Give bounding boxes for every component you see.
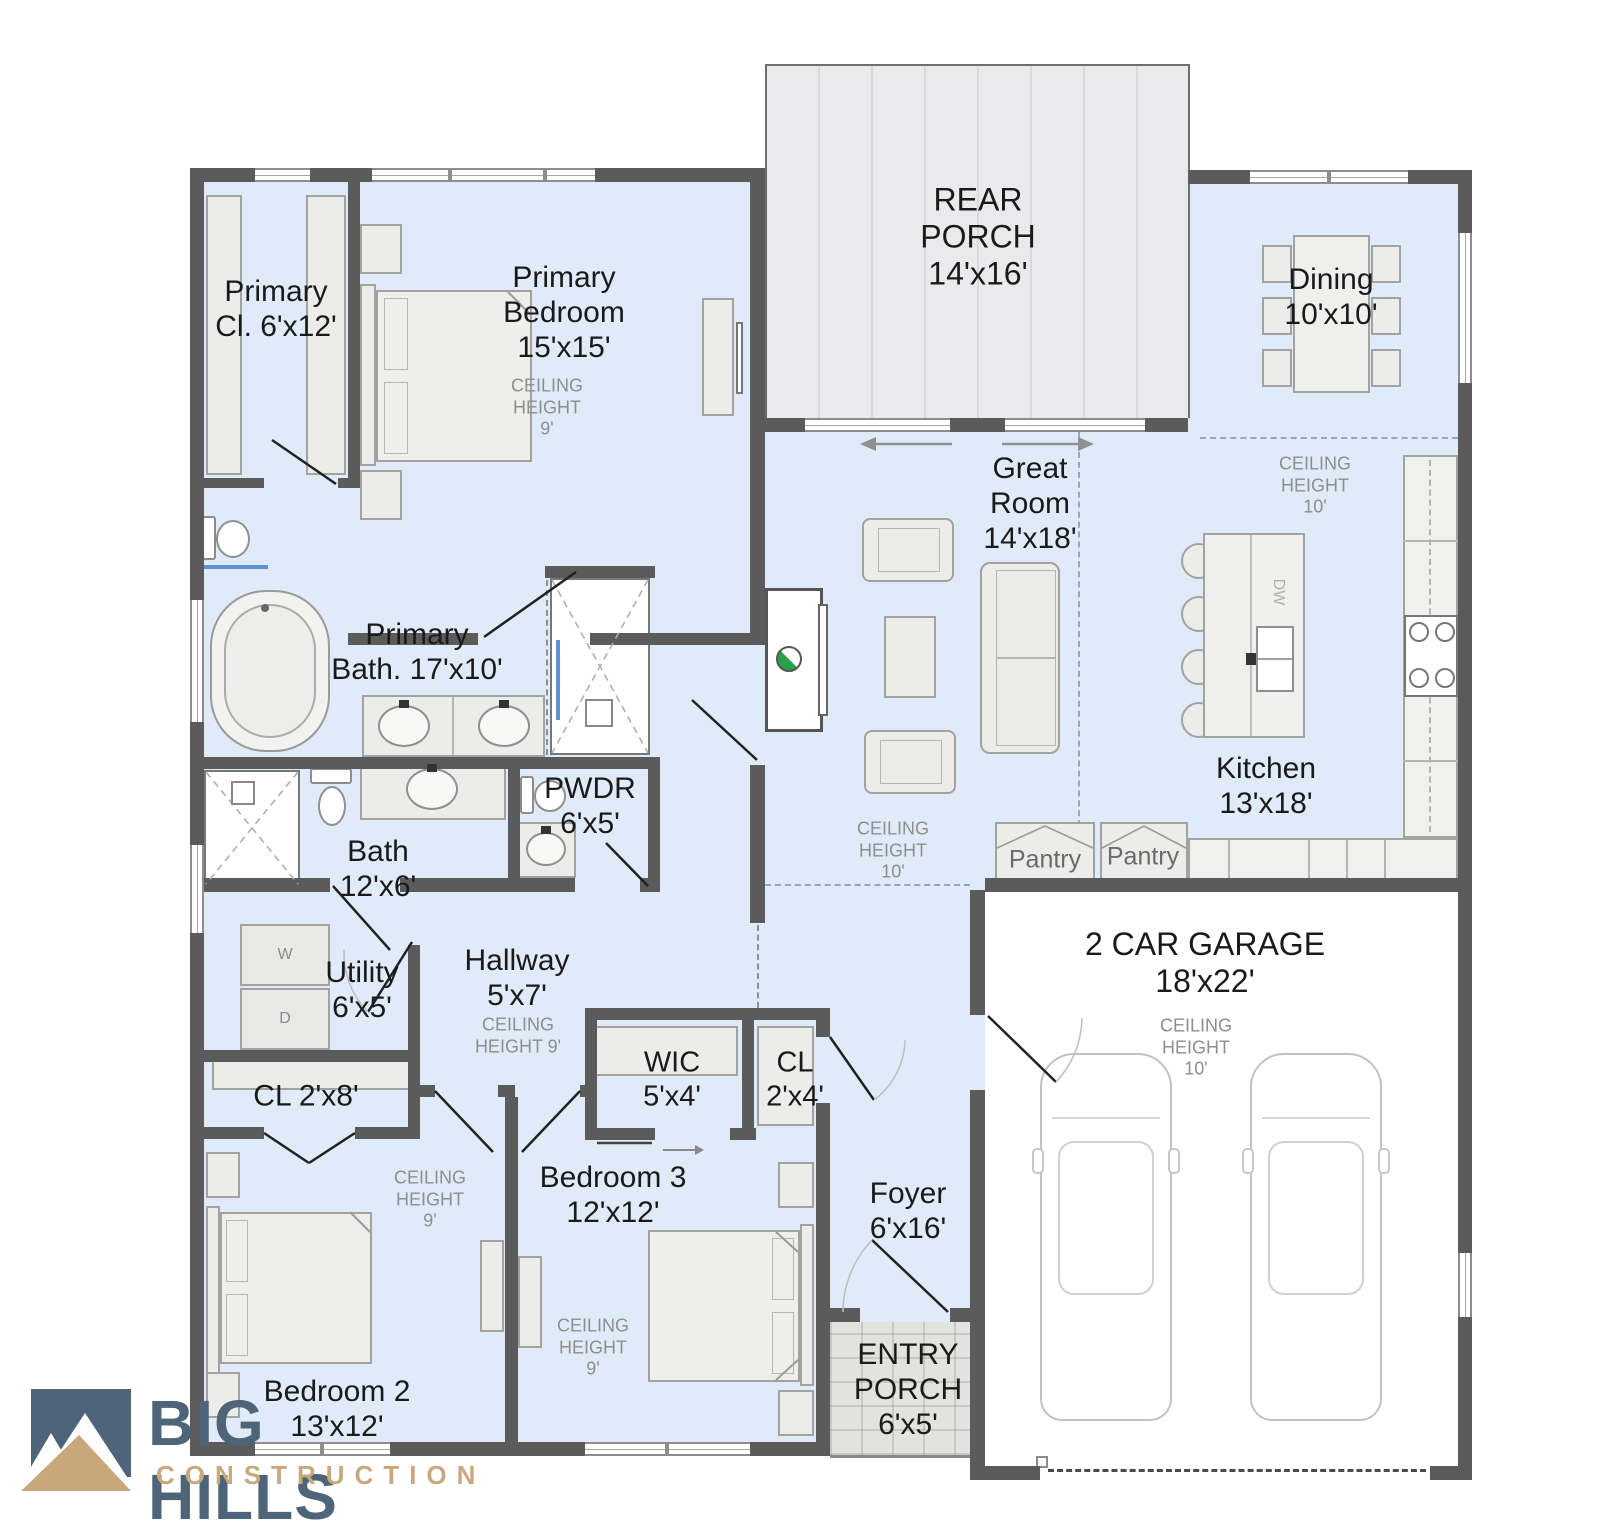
room-label-bedroom2: Bedroom 2 13'x12' — [264, 1375, 411, 1445]
wall-segment — [505, 1097, 518, 1456]
wall-segment — [816, 1103, 830, 1456]
toilet-bowl — [318, 786, 346, 826]
room-label-foyer-closet: CL 2'x4' — [766, 1046, 824, 1113]
sliding-door — [805, 418, 950, 432]
bathtub-basin — [224, 604, 316, 738]
room-label-powder: PWDR 6'x5' — [544, 772, 636, 842]
island-sink-divider — [1258, 658, 1292, 660]
nightstand — [360, 224, 402, 274]
logo-tan-peak — [21, 1435, 131, 1491]
towel-bar — [202, 565, 268, 569]
nightstand — [360, 470, 402, 520]
car — [1040, 1053, 1172, 1421]
sofa-cushion-line — [997, 657, 1055, 659]
wall-segment — [590, 633, 765, 645]
bed-pillow — [226, 1294, 248, 1356]
room-label-kitchen: Kitchen 13'x18' — [1216, 752, 1316, 822]
ceiling-label-dining: CEILING HEIGHT 10' — [1279, 454, 1351, 519]
wall-segment — [498, 1085, 515, 1097]
wall-segment — [585, 1008, 830, 1020]
burner — [1409, 622, 1429, 642]
burner — [1435, 622, 1455, 642]
sliding-door — [1005, 418, 1145, 432]
toilet-tank — [520, 776, 534, 814]
dresser — [518, 1256, 542, 1348]
nightstand — [206, 1152, 240, 1198]
burner — [1435, 668, 1455, 688]
ceiling-break-line — [1200, 437, 1458, 439]
washer-label: W — [277, 946, 292, 964]
dresser — [480, 1240, 504, 1332]
dryer-label: D — [279, 1010, 291, 1028]
wall-segment — [1430, 1466, 1472, 1480]
room-label-bath: Bath 12'x6' — [340, 835, 417, 905]
burner — [1409, 668, 1429, 688]
wall-segment — [970, 1090, 985, 1480]
window-mullion — [665, 1442, 669, 1456]
wall-segment — [595, 168, 765, 182]
wall-segment — [1458, 383, 1472, 1253]
wall-segment — [1458, 170, 1472, 233]
sink — [378, 705, 430, 747]
toilet-tank — [310, 768, 352, 784]
ceiling-break-line — [757, 925, 759, 1008]
window-mullion — [448, 168, 452, 182]
room-label-hallway: Hallway 5'x7' — [464, 944, 569, 1014]
wall-segment — [348, 182, 360, 478]
wall-segment — [204, 478, 264, 488]
window-mullion — [543, 168, 547, 182]
room-label-garage: 2 CAR GARAGE 18'x22' — [1085, 926, 1325, 1000]
wall-segment — [640, 878, 660, 892]
shower-glass-line — [546, 580, 548, 755]
wall-segment — [648, 769, 660, 890]
car-mirror — [1242, 1148, 1254, 1174]
island-counter-line — [1250, 535, 1252, 736]
logo-tagline: CONSTRUCTION — [156, 1460, 485, 1491]
window — [190, 845, 204, 933]
wall-segment — [190, 168, 204, 600]
wall-segment — [400, 878, 575, 892]
wall-segment — [508, 769, 520, 890]
shower-accent — [556, 640, 560, 720]
room-label-bedroom3: Bedroom 3 12'x12' — [540, 1161, 687, 1231]
wall-segment — [408, 945, 420, 1062]
room-label-rear-porch: REAR PORCH 14'x16' — [920, 181, 1036, 292]
counter-divider — [1403, 760, 1458, 762]
dining-chair — [1371, 349, 1401, 387]
wall-segment — [750, 765, 765, 923]
ceiling-label-bedroom2: CEILING HEIGHT 9' — [394, 1168, 466, 1233]
dining-chair — [1262, 349, 1292, 387]
wall-segment — [390, 1442, 585, 1456]
bed-headboard — [360, 284, 376, 466]
pantry-label: Pantry — [1107, 843, 1179, 872]
floor-great-room — [765, 418, 1188, 890]
wall-segment — [970, 890, 985, 1015]
wall-segment — [545, 566, 655, 578]
car-mirror — [1168, 1148, 1180, 1174]
wall-segment — [985, 878, 1472, 892]
ceiling-label-hallway: CEILING HEIGHT 9' — [475, 1014, 561, 1057]
bed-pillow — [772, 1238, 794, 1300]
tv-panel — [818, 604, 828, 716]
nightstand — [778, 1162, 814, 1208]
room-label-dining: Dining 10'x10' — [1284, 263, 1377, 333]
room-label-primary-bedroom: Primary Bedroom 15'x15' — [503, 261, 625, 365]
wall-segment — [204, 878, 330, 892]
bed-pillow — [772, 1312, 794, 1374]
vanity-divider — [452, 697, 454, 755]
room-label-wic: WIC 5'x4' — [643, 1046, 701, 1113]
wall-segment — [204, 1050, 420, 1062]
window-mullion — [1327, 170, 1331, 184]
car — [1250, 1053, 1382, 1421]
wall-segment — [338, 478, 360, 488]
nightstand — [778, 1390, 814, 1436]
car-mirror — [1032, 1148, 1044, 1174]
room-label-primary-bath: Primary Bath. 17'x10' — [331, 618, 503, 688]
room-label-entry-porch: ENTRY PORCH 6'x5' — [854, 1338, 962, 1442]
wall-segment — [190, 933, 204, 1456]
toilet-tank — [202, 516, 216, 560]
wall-segment — [585, 1128, 655, 1140]
wall-segment — [1145, 418, 1188, 432]
wall-segment — [830, 1308, 860, 1322]
bed-pillow — [226, 1220, 248, 1282]
toilet-bowl — [216, 520, 250, 558]
bed-pillow — [384, 298, 408, 370]
coffee-table — [884, 616, 936, 698]
wall-segment — [585, 1020, 597, 1140]
shower-bath — [204, 770, 300, 886]
sink — [478, 705, 530, 747]
car-mirror — [1378, 1148, 1390, 1174]
sink — [406, 768, 458, 810]
logo-mountain-icon — [31, 1389, 131, 1491]
bed-headboard — [800, 1224, 814, 1386]
wall-segment — [190, 722, 204, 845]
ceiling-label-primary-bedroom: CEILING HEIGHT 9' — [511, 376, 583, 441]
window — [1458, 1253, 1472, 1317]
wall-segment — [750, 168, 765, 633]
wall-segment — [742, 1020, 754, 1140]
room-label-foyer: Foyer 6'x16' — [870, 1177, 947, 1247]
wall-segment — [730, 1128, 756, 1140]
dresser — [702, 298, 734, 416]
dishwasher-label: DW — [1269, 579, 1287, 606]
wall-segment — [1458, 1317, 1472, 1480]
counter-divider — [1403, 540, 1458, 542]
armchair-cushion — [878, 528, 940, 572]
ceiling-label-garage: CEILING HEIGHT 10' — [1160, 1016, 1232, 1081]
pantry-label: Pantry — [1009, 846, 1081, 875]
tv — [736, 322, 743, 394]
room-label-primary-closet: Primary Cl. 6'x12' — [215, 275, 337, 345]
window — [190, 600, 204, 722]
shower-primary — [550, 578, 650, 755]
window — [1458, 233, 1472, 383]
bed-headboard — [206, 1206, 220, 1374]
wall-segment — [985, 1466, 1040, 1480]
ceiling-break-line — [765, 884, 970, 886]
ceiling-label-bedroom3: CEILING HEIGHT 9' — [557, 1316, 629, 1381]
window — [372, 168, 595, 182]
room-label-hall-closet: CL 2'x8' — [253, 1080, 358, 1115]
wall-segment — [950, 418, 1005, 432]
wall-segment — [420, 1085, 435, 1097]
bed-pillow — [384, 382, 408, 454]
wall-segment — [816, 1008, 830, 1037]
ceiling-break-line — [1078, 432, 1080, 876]
floor-plan: REAR PORCH 14'x16' Primary Cl. 6'x12' Pr… — [0, 0, 1600, 1521]
window — [255, 168, 310, 182]
wall-segment — [204, 757, 660, 769]
wall-segment — [204, 1127, 264, 1139]
room-label-great-room: Great Room 14'x18' — [983, 452, 1076, 556]
wall-segment — [408, 1062, 420, 1139]
room-label-utility: Utility 6'x5' — [325, 956, 398, 1026]
wall-segment — [765, 418, 805, 432]
ceiling-label-great-room: CEILING HEIGHT 10' — [857, 819, 929, 884]
armchair-cushion — [880, 740, 942, 784]
wall-segment — [310, 168, 372, 182]
ceiling-fan-symbol — [776, 646, 802, 672]
wall-segment — [1188, 170, 1250, 184]
garage-door-line — [1048, 1469, 1426, 1472]
